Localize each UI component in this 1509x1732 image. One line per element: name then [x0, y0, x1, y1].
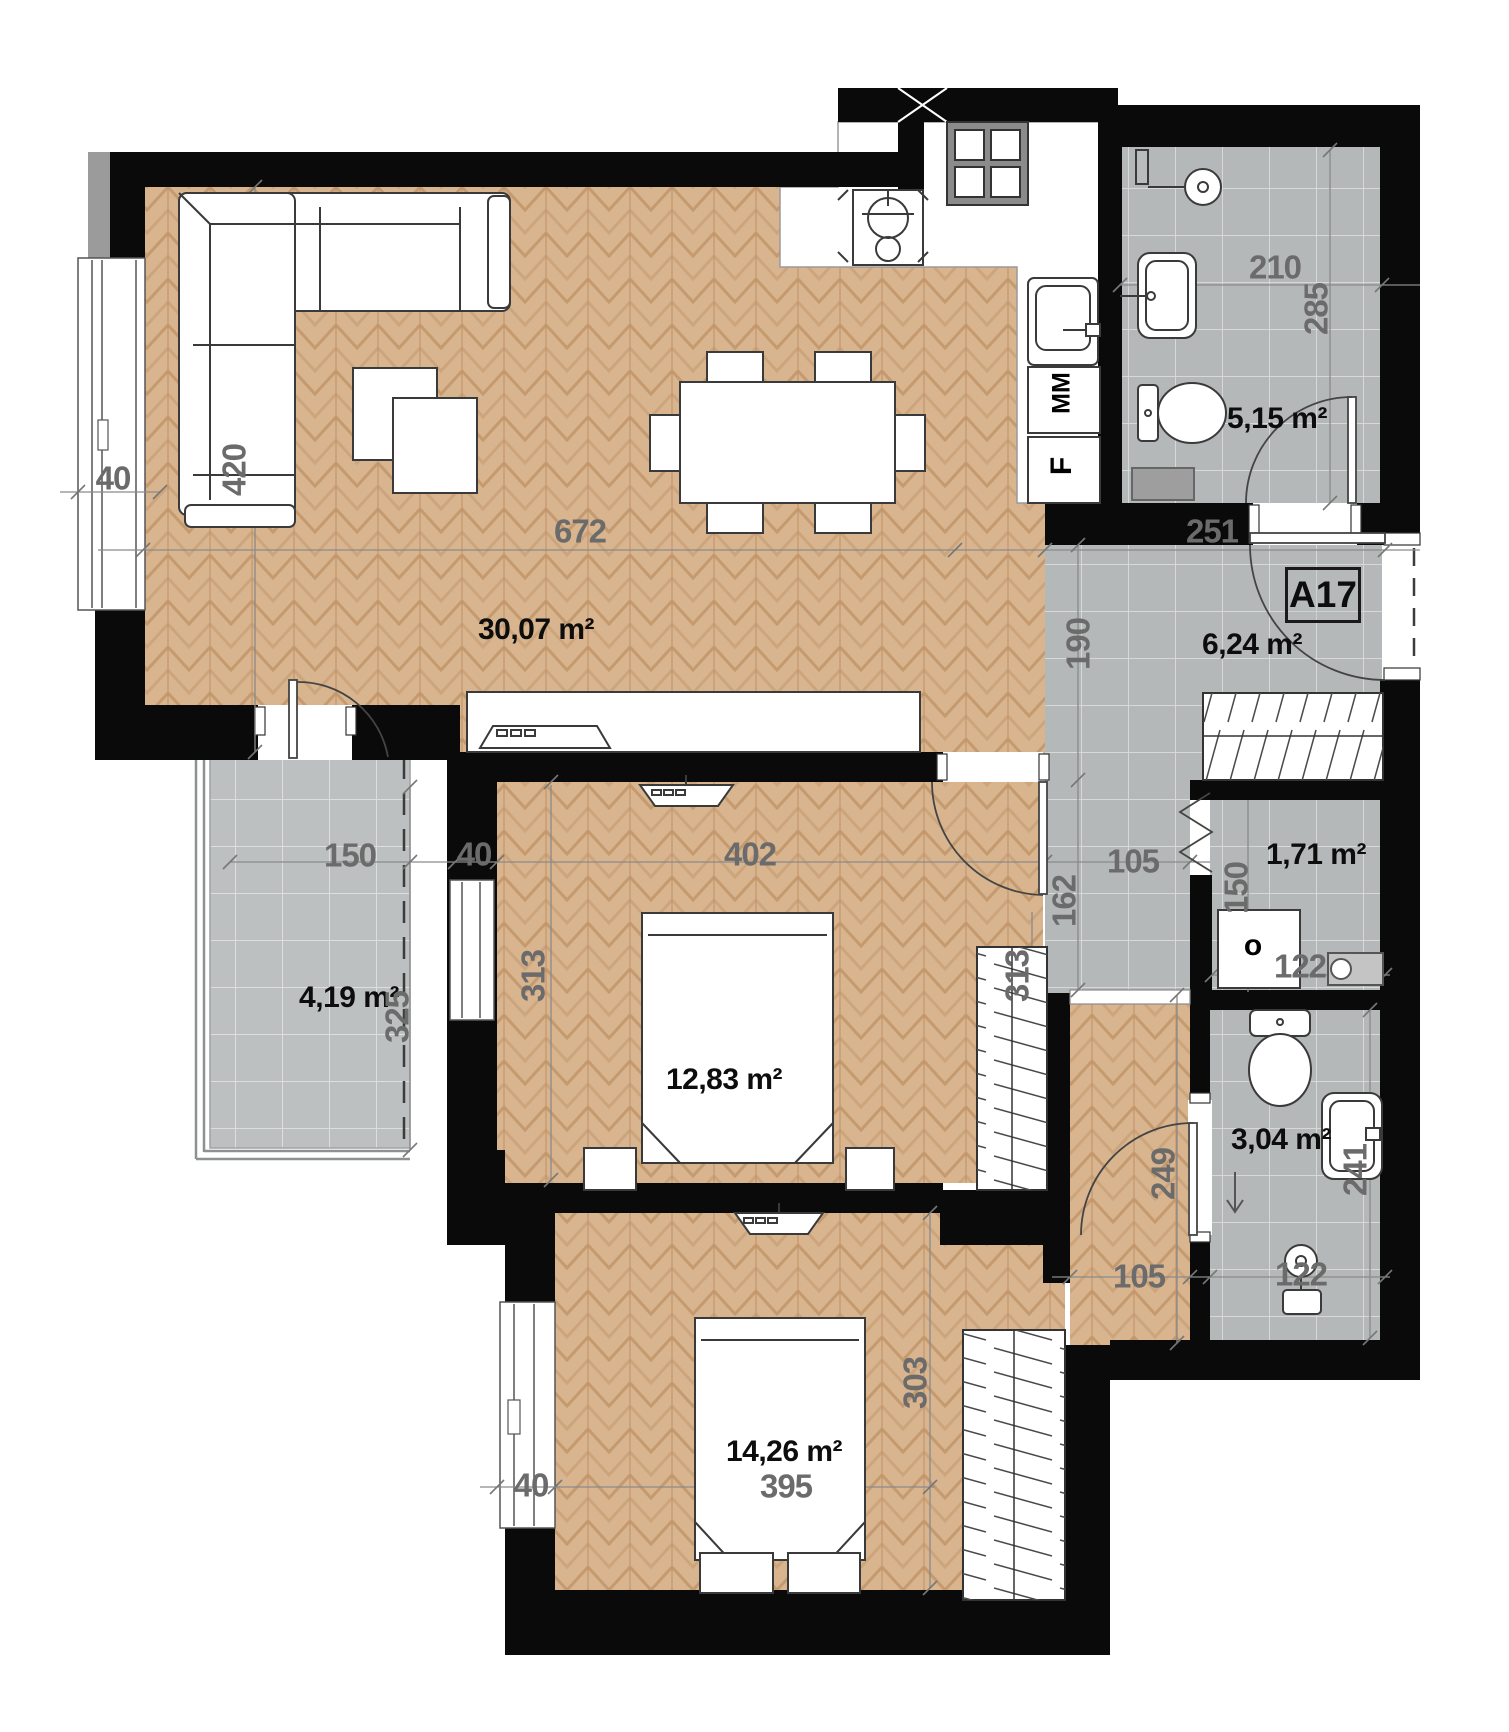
dim-313: 313	[517, 950, 550, 1002]
toilet-2	[1249, 1010, 1311, 1106]
unit-number-badge: A17	[1285, 567, 1361, 623]
dim-303: 303	[899, 1357, 932, 1409]
room-label-hall: 6,24 m²	[1202, 630, 1302, 660]
storage-shelf	[1328, 953, 1383, 985]
tv-sideboard	[467, 692, 920, 752]
stove-icon	[947, 122, 1028, 205]
room-label-bathroom: 5,15 m²	[1227, 404, 1327, 434]
hall-wardrobe	[1203, 693, 1383, 780]
bed-1	[642, 913, 833, 1163]
dim-285: 285	[1300, 283, 1333, 335]
kitchen-sink	[1028, 278, 1100, 365]
bedroom-1-window	[450, 880, 494, 1020]
dim-105-corridor: 105	[1113, 1260, 1165, 1293]
dining-table	[680, 382, 895, 503]
room-label-bedroom-2: 14,26 m²	[726, 1437, 842, 1467]
nightstand	[584, 1148, 636, 1190]
dim-150-balcony: 150	[324, 839, 376, 872]
radiator	[1132, 468, 1194, 500]
bedroom-1-door-opening	[943, 752, 1043, 782]
dim-325: 325	[381, 991, 414, 1043]
dim-105: 105	[1107, 845, 1159, 878]
dim-251: 251	[1186, 515, 1238, 548]
dim-402: 402	[724, 838, 776, 871]
dim-40-wall: 40	[457, 838, 492, 871]
room-label-storage: 1,71 m²	[1266, 840, 1366, 870]
floor-plan: 30,07 m² 5,15 m² 6,24 m² 1,71 m² 4,19 m²…	[0, 0, 1509, 1732]
nightstand-2	[846, 1148, 894, 1190]
dim-395: 395	[760, 1470, 812, 1503]
dim-210: 210	[1249, 251, 1301, 284]
dim-672: 672	[554, 515, 606, 548]
entrance-opening	[1382, 545, 1422, 680]
dim-190: 190	[1062, 618, 1095, 670]
dim-122-storage: 122	[1274, 950, 1326, 983]
room-label-bedroom-1: 12,83 m²	[666, 1065, 782, 1095]
living-room-window	[78, 258, 145, 610]
foot-bench-2	[788, 1553, 860, 1593]
facade-strip	[88, 152, 110, 258]
dim-249: 249	[1147, 1148, 1180, 1200]
room-label-living: 30,07 m²	[478, 615, 594, 645]
coffee-table-2	[393, 398, 477, 493]
dim-420: 420	[218, 444, 251, 496]
balcony-floor	[210, 757, 410, 1148]
dim-313-wardrobe: 313	[1001, 950, 1034, 1002]
dim-150-storage: 150	[1220, 862, 1253, 914]
foot-bench	[700, 1553, 773, 1593]
toilet	[1138, 383, 1226, 443]
wardrobe-2	[963, 1330, 1065, 1600]
threshold	[1070, 990, 1190, 1004]
dim-40-bedroom2: 40	[514, 1469, 549, 1502]
dim-40-window: 40	[96, 462, 131, 495]
dim-162: 162	[1048, 875, 1081, 927]
shaft-icon	[898, 88, 947, 122]
room-label-bathroom-2: 3,04 m²	[1231, 1125, 1331, 1155]
balcony-door-opening	[258, 705, 352, 760]
fridge-mark-label: F	[1047, 457, 1077, 475]
washer-drum-label: o	[1244, 931, 1262, 961]
dim-241: 241	[1339, 1144, 1372, 1196]
dim-122-shower: 122	[1275, 1258, 1327, 1291]
washer-mark-label: MM	[1050, 372, 1075, 414]
